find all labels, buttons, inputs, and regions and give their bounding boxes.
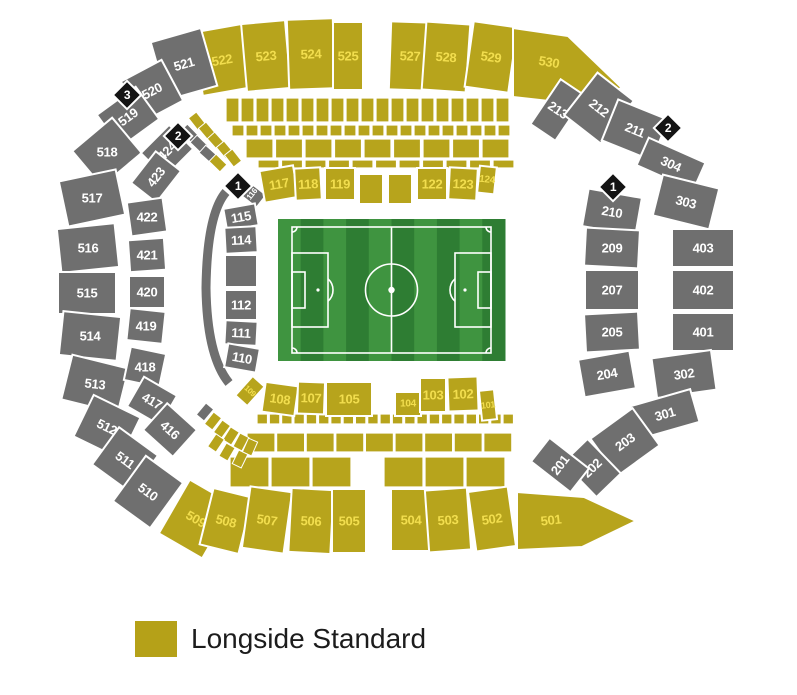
seat-block bbox=[358, 125, 370, 136]
section-label-501: 501 bbox=[540, 511, 562, 528]
seat-block bbox=[496, 98, 509, 122]
section-label-507: 507 bbox=[256, 511, 279, 529]
section-label-527: 527 bbox=[399, 48, 420, 64]
seat-block bbox=[442, 414, 453, 424]
pitch-stripe bbox=[323, 219, 346, 361]
seat-block bbox=[470, 125, 482, 136]
section-label-114: 114 bbox=[231, 232, 253, 248]
seat-block bbox=[361, 98, 374, 122]
section-label-302: 302 bbox=[673, 365, 696, 383]
seat-block bbox=[364, 139, 391, 158]
seat-block bbox=[316, 98, 329, 122]
section-label-525: 525 bbox=[338, 49, 359, 64]
section-label-502: 502 bbox=[481, 510, 504, 528]
section-label-209: 209 bbox=[602, 241, 623, 256]
seat-block bbox=[376, 98, 389, 122]
section-label-107: 107 bbox=[300, 390, 321, 406]
seat-block bbox=[414, 125, 426, 136]
section-label-420: 420 bbox=[137, 285, 158, 300]
seat-block bbox=[466, 457, 505, 487]
entrance-number: 3 bbox=[124, 88, 131, 102]
seat-block bbox=[274, 125, 286, 136]
section-label-119: 119 bbox=[330, 177, 350, 192]
seat-block bbox=[394, 139, 421, 158]
section-label-123: 123 bbox=[452, 176, 474, 192]
seat-block bbox=[258, 160, 279, 168]
section-label-513: 513 bbox=[84, 375, 106, 392]
seat-block bbox=[498, 125, 510, 136]
seat-block bbox=[423, 160, 444, 168]
seat-block bbox=[277, 433, 305, 452]
seat-block bbox=[316, 125, 328, 136]
seat-block bbox=[306, 433, 334, 452]
section-label-506: 506 bbox=[300, 513, 322, 529]
seat-block bbox=[454, 414, 465, 424]
section-unlabeled bbox=[225, 255, 257, 287]
section-label-517: 517 bbox=[82, 191, 103, 206]
seat-block bbox=[454, 433, 482, 452]
stadium-seating-page: 5225235245255275285295305215205195185175… bbox=[0, 0, 797, 695]
stadium-map: 5225235245255275285295305215205195185175… bbox=[0, 0, 797, 600]
seat-block bbox=[302, 125, 314, 136]
seat-block bbox=[288, 125, 300, 136]
seat-block bbox=[453, 139, 480, 158]
section-label-419: 419 bbox=[136, 319, 157, 334]
seat-block bbox=[246, 139, 273, 158]
seat-block bbox=[312, 457, 351, 487]
legend-label: Longside Standard bbox=[191, 623, 426, 655]
seat-block bbox=[256, 98, 269, 122]
seat-block bbox=[482, 139, 509, 158]
seat-block bbox=[400, 125, 412, 136]
legend: Longside Standard bbox=[135, 621, 426, 657]
seat-block bbox=[456, 125, 468, 136]
section-label-529: 529 bbox=[480, 48, 503, 66]
seat-block bbox=[301, 98, 314, 122]
seat-block bbox=[372, 125, 384, 136]
seat-block bbox=[335, 139, 362, 158]
seat-block bbox=[352, 160, 373, 168]
seat-block bbox=[466, 98, 479, 122]
section-label-401: 401 bbox=[693, 325, 714, 340]
seat-block bbox=[294, 414, 305, 424]
seat-block bbox=[391, 98, 404, 122]
section-label-528: 528 bbox=[435, 49, 457, 65]
entrance-number: 1 bbox=[610, 180, 617, 194]
pitch-stripe bbox=[437, 219, 460, 361]
seat-block bbox=[421, 98, 434, 122]
pitch-stripe bbox=[301, 219, 324, 361]
seat-block bbox=[484, 433, 512, 452]
section-unlabeled[interactable] bbox=[359, 174, 383, 204]
section-label-518: 518 bbox=[97, 145, 118, 160]
seat-block bbox=[428, 125, 440, 136]
entrance-number: 2 bbox=[665, 121, 672, 135]
seat-block bbox=[365, 433, 393, 452]
section-label-102: 102 bbox=[452, 386, 473, 402]
section-label-104: 104 bbox=[400, 399, 417, 410]
section-label-124: 124 bbox=[479, 174, 497, 187]
section-label-422: 422 bbox=[137, 210, 158, 225]
seat-block bbox=[346, 98, 359, 122]
section-label-403: 403 bbox=[693, 241, 714, 256]
seat-block bbox=[376, 160, 397, 168]
seat-block bbox=[484, 125, 496, 136]
seat-block bbox=[306, 414, 317, 424]
seat-block bbox=[399, 160, 420, 168]
section-label-207: 207 bbox=[602, 283, 623, 298]
section-unlabeled[interactable] bbox=[388, 174, 412, 204]
seat-block bbox=[269, 414, 280, 424]
section-label-122: 122 bbox=[422, 177, 443, 192]
seat-block bbox=[330, 125, 342, 136]
seat-block bbox=[466, 414, 477, 424]
seat-block bbox=[241, 98, 254, 122]
section-label-402: 402 bbox=[693, 283, 714, 298]
section-label-111: 111 bbox=[231, 325, 251, 341]
section-label-418: 418 bbox=[135, 360, 156, 375]
seat-block bbox=[331, 98, 344, 122]
seat-block bbox=[425, 457, 464, 487]
section-label-108: 108 bbox=[269, 390, 292, 408]
seat-block bbox=[442, 125, 454, 136]
pitch-stripe bbox=[392, 219, 415, 361]
seat-block bbox=[384, 457, 423, 487]
section-label-118: 118 bbox=[298, 176, 319, 192]
seat-block bbox=[425, 433, 453, 452]
stadium-map-container: 5225235245255275285295305215205195185175… bbox=[0, 0, 797, 600]
seat-block bbox=[503, 414, 514, 424]
seat-block bbox=[329, 160, 350, 168]
seat-block bbox=[271, 457, 310, 487]
entrance-number: 1 bbox=[235, 179, 242, 193]
seat-block bbox=[423, 139, 450, 158]
seat-block bbox=[260, 125, 272, 136]
section-label-205: 205 bbox=[602, 325, 623, 340]
section-label-516: 516 bbox=[78, 241, 99, 256]
seat-block bbox=[271, 98, 284, 122]
section-label-523: 523 bbox=[255, 48, 277, 65]
section-label-101: 101 bbox=[480, 399, 495, 410]
pitch-stripe bbox=[460, 219, 483, 361]
section-label-103: 103 bbox=[423, 388, 444, 403]
seat-block bbox=[286, 98, 299, 122]
seat-block bbox=[406, 98, 419, 122]
pitch-stripe bbox=[278, 219, 301, 361]
seat-block bbox=[451, 98, 464, 122]
seat-block bbox=[380, 414, 391, 424]
seat-block bbox=[429, 414, 440, 424]
seat-block bbox=[436, 98, 449, 122]
section-label-421: 421 bbox=[137, 248, 158, 263]
entrance-number: 2 bbox=[175, 129, 182, 143]
seat-block bbox=[305, 139, 332, 158]
section-label-505: 505 bbox=[339, 514, 360, 529]
seat-block bbox=[481, 98, 494, 122]
section-label-112: 112 bbox=[231, 298, 251, 313]
seat-block bbox=[386, 125, 398, 136]
seat-block bbox=[246, 125, 258, 136]
seat-block bbox=[232, 125, 244, 136]
legend-swatch-longside-standard bbox=[135, 621, 177, 657]
section-501[interactable] bbox=[517, 492, 636, 550]
seat-block bbox=[276, 139, 303, 158]
pitch-stripe bbox=[482, 219, 505, 361]
section-label-105: 105 bbox=[339, 392, 360, 407]
section-label-524: 524 bbox=[300, 46, 322, 62]
seat-block bbox=[257, 414, 268, 424]
seat-block bbox=[336, 433, 364, 452]
section-label-514: 514 bbox=[80, 329, 102, 344]
seat-block bbox=[226, 98, 239, 122]
section-label-515: 515 bbox=[77, 286, 98, 301]
seat-block bbox=[395, 433, 423, 452]
section-label-504: 504 bbox=[401, 513, 423, 528]
section-label-503: 503 bbox=[437, 512, 459, 528]
football-pitch bbox=[278, 219, 506, 361]
seat-block bbox=[344, 125, 356, 136]
